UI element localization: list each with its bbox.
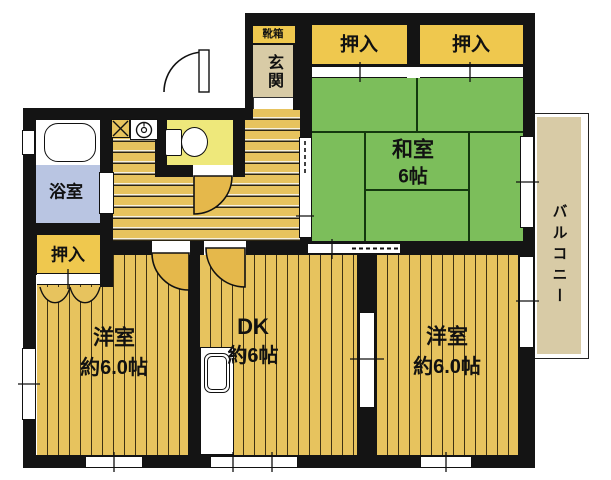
tatami-line xyxy=(416,78,418,132)
closet-label-bottom-left: 押入 xyxy=(51,247,85,264)
window xyxy=(420,456,472,468)
closet-top-left-track xyxy=(312,66,407,78)
tatami-line xyxy=(364,131,366,243)
dk-western-right-sliding-door xyxy=(359,312,375,408)
window-western-right-balcony xyxy=(519,256,534,348)
room-label-entrance: 玄関 xyxy=(265,54,281,90)
bathroom-door xyxy=(99,172,114,214)
floor-plan: 和室 6帖 DK 約6帖 洋室 約6.0帖 洋室 約6.0帖 浴室 玄関 靴箱 … xyxy=(0,0,611,480)
kitchen-sink-basin xyxy=(207,356,227,390)
dk-door-opening xyxy=(204,241,246,255)
washitsu-west-sliding-door xyxy=(299,137,312,238)
washitsu-south-sliding-track xyxy=(308,243,400,254)
western-room-right-floor xyxy=(377,254,518,455)
washing-machine-icon xyxy=(130,119,158,140)
window-washitsu-balcony xyxy=(520,136,534,228)
toilet-icon xyxy=(165,129,182,156)
wall-left-dk xyxy=(188,241,200,468)
room-label-balcony: バルコニー xyxy=(552,204,567,309)
tatami-line xyxy=(468,131,470,243)
closet-label-top-left: 押入 xyxy=(340,36,378,55)
room-label-bathroom: 浴室 xyxy=(49,184,83,201)
window xyxy=(85,456,143,468)
window xyxy=(210,456,298,468)
tatami-line xyxy=(364,189,468,191)
room-size-dk: 約6帖 xyxy=(227,346,278,366)
room-label-dk: DK xyxy=(237,316,269,338)
bathtub-icon xyxy=(44,123,96,162)
toilet-door-opening xyxy=(193,165,233,177)
western-left-door-opening xyxy=(152,241,190,255)
closet-bottom-left-track xyxy=(37,273,100,285)
toilet-bowl-icon xyxy=(181,127,208,157)
room-size-western-right: 約6.0帖 xyxy=(413,357,481,377)
room-size-western-left: 約6.0帖 xyxy=(80,358,148,378)
room-label-shoe-cabinet: 靴箱 xyxy=(263,29,284,40)
room-size-washitsu: 6帖 xyxy=(398,168,428,187)
closet-top-right-track xyxy=(420,66,523,78)
window xyxy=(22,130,35,155)
closet-label-top-right: 押入 xyxy=(452,36,490,55)
room-label-western-right: 洋室 xyxy=(426,327,468,348)
washing-machine-pan-icon xyxy=(111,119,130,138)
room-label-western-left: 洋室 xyxy=(93,328,135,349)
window xyxy=(22,348,36,420)
room-label-washitsu: 和室 xyxy=(392,140,434,161)
